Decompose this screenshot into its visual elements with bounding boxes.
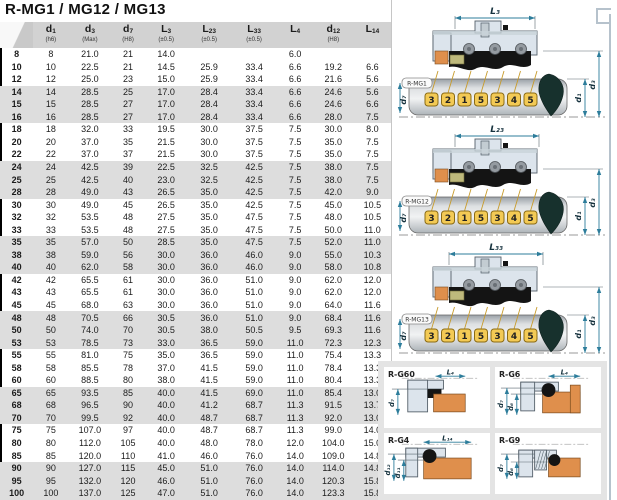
cell: 30.0 (145, 261, 188, 274)
svg-text:5: 5 (527, 214, 533, 224)
row-label: 8 (0, 48, 33, 61)
cell: 36.5 (188, 337, 231, 350)
cell: 9.0 (278, 249, 313, 262)
table-row: 404062.05830.036.046.09.058.010.8 (0, 261, 391, 274)
cell: 7.5 (278, 186, 313, 199)
cell: 75.4 (313, 349, 354, 362)
cell: 22 (33, 148, 68, 161)
row-label: 58 (0, 362, 33, 375)
cell: 11.0 (278, 337, 313, 350)
svg-text:2: 2 (445, 332, 451, 342)
cell: 9.5 (278, 324, 313, 337)
cell: 37.0 (68, 148, 111, 161)
cell: 9.0 (278, 261, 313, 274)
cell: 64.0 (313, 299, 354, 312)
cell: 9.0 (278, 299, 313, 312)
cell: 78.5 (68, 337, 111, 350)
cell: 28.5 (68, 111, 111, 124)
row-label: 15 (0, 98, 33, 111)
cell: 51.0 (188, 462, 231, 475)
cell: 90 (33, 462, 68, 475)
cell: 49.0 (68, 199, 111, 212)
cell: 58 (33, 362, 68, 375)
cell: 76.0 (231, 475, 278, 488)
cell: 12.0 (278, 437, 313, 450)
cell: 125 (111, 487, 144, 500)
row-label: 53 (0, 337, 33, 350)
corner-header (0, 22, 33, 48)
table-row: 333353.54827.535.047.57.550.011.0 (0, 224, 391, 237)
cell: 7.5 (354, 161, 391, 174)
table-row: 383859.05630.036.046.09.055.010.3 (0, 249, 391, 262)
cell: 30.5 (145, 311, 188, 324)
cell: 22.5 (68, 61, 111, 74)
cell (188, 48, 231, 61)
cell: 35.0 (188, 186, 231, 199)
cell: 6.6 (354, 61, 391, 74)
cell: 28.4 (188, 98, 231, 111)
cell: 38.0 (313, 161, 354, 174)
cell: 7.5 (354, 111, 391, 124)
svg-text:d₇: d₇ (497, 464, 505, 472)
table-row: 252542.54023.032.542.57.538.07.5 (0, 173, 391, 186)
cell: 59.0 (231, 337, 278, 350)
cell: 24.6 (313, 86, 354, 99)
row-label: 38 (0, 249, 33, 262)
cell: 69.3 (313, 324, 354, 337)
cell: 17.0 (145, 111, 188, 124)
cell: 48.7 (188, 424, 231, 437)
row-label: 40 (0, 261, 33, 274)
cell: 27.5 (145, 224, 188, 237)
cell: 100 (33, 487, 68, 500)
cell: 30.0 (188, 123, 231, 136)
cell: 28.4 (188, 111, 231, 124)
cell: 115 (111, 462, 144, 475)
cell: 76.0 (231, 462, 278, 475)
cell: 25.9 (188, 73, 231, 86)
cell: 33.4 (231, 73, 278, 86)
cell: 17.0 (145, 86, 188, 99)
card-label: R-G6 (499, 370, 521, 379)
table-row: 242442.53922.532.542.57.538.07.5 (0, 161, 391, 174)
seat-ring (435, 169, 448, 182)
cell: 69.0 (231, 387, 278, 400)
diagram-label: R-MG1 (407, 81, 427, 88)
cell: 7.5 (354, 173, 391, 186)
cell: 8 (33, 48, 68, 61)
cell: 132.0 (68, 475, 111, 488)
row-label: 14 (0, 86, 33, 99)
cell: 68.4 (313, 311, 354, 324)
svg-text:d₃: d₃ (588, 80, 597, 90)
row-label: 16 (0, 111, 33, 124)
cell: 7.5 (278, 236, 313, 249)
cell: 46.0 (188, 450, 231, 463)
cell: 6.6 (278, 98, 313, 111)
svg-text:3: 3 (494, 96, 500, 106)
cell: 47.5 (231, 224, 278, 237)
cell: 110 (111, 450, 144, 463)
cell: 37.5 (231, 136, 278, 149)
cell: 56 (111, 249, 144, 262)
cell: 50 (33, 324, 68, 337)
card-label: R-G60 (388, 370, 415, 379)
cell: 37.0 (145, 362, 188, 375)
diagram-label: R-MG12 (405, 199, 429, 206)
o-ring (548, 454, 560, 466)
cell: 24 (33, 161, 68, 174)
cell: 33.4 (231, 111, 278, 124)
cell: 112.0 (68, 437, 111, 450)
cell: 105 (111, 437, 144, 450)
cell: 45 (111, 199, 144, 212)
cell: 120.0 (68, 450, 111, 463)
table-row: 606088.58038.041.559.011.080.413.3 (0, 374, 391, 387)
row-label: 45 (0, 299, 33, 312)
cell: 12.0 (354, 274, 391, 287)
cell: 23.0 (145, 173, 188, 186)
cell: 25 (33, 173, 68, 186)
cell: 76.0 (231, 450, 278, 463)
cell: 28.5 (68, 86, 111, 99)
cell: 127.0 (68, 462, 111, 475)
cell: 47.5 (231, 211, 278, 224)
cell: 32.5 (188, 173, 231, 186)
cell: 20 (33, 136, 68, 149)
cell: 48 (111, 224, 144, 237)
svg-text:d₇: d₇ (399, 213, 408, 223)
cell: 59.0 (231, 374, 278, 387)
cell: 7.5 (278, 224, 313, 237)
cell: 33.4 (231, 98, 278, 111)
row-label: 20 (0, 136, 33, 149)
cell: 40 (111, 173, 144, 186)
cell: 62.0 (68, 261, 111, 274)
cell: 45.0 (145, 462, 188, 475)
cell: 27 (111, 98, 144, 111)
svg-text:2: 2 (445, 214, 451, 224)
cell: 37.5 (231, 123, 278, 136)
svg-text:L₂₃: L₂₃ (490, 125, 504, 135)
seat-card-r-g9: R-G9d₇d₆ (495, 433, 601, 494)
cell: 51.0 (188, 475, 231, 488)
row-label: 95 (0, 475, 33, 488)
cell: 30.0 (145, 274, 188, 287)
cell: 10 (33, 61, 68, 74)
svg-text:d₆: d₆ (507, 468, 515, 476)
cell: 14.0 (278, 487, 313, 500)
cell: 36.0 (188, 286, 231, 299)
cell: 9.0 (278, 274, 313, 287)
cell: 35 (33, 236, 68, 249)
cell: 6.6 (278, 111, 313, 124)
o-ring (542, 383, 556, 397)
cell: 58 (111, 261, 144, 274)
cell: 70.5 (68, 311, 111, 324)
cell: 33 (111, 123, 144, 136)
row-label: 75 (0, 424, 33, 437)
cell: 50 (111, 236, 144, 249)
cell: 85.4 (313, 387, 354, 400)
cell: 38.0 (145, 374, 188, 387)
cell: 16 (33, 111, 68, 124)
cell: 30.0 (145, 249, 188, 262)
table-row: 181832.03319.530.037.57.530.08.0 (0, 123, 391, 136)
column-header-d1: d1(h6) (33, 22, 68, 48)
cell: 42.5 (231, 173, 278, 186)
cell: 7.5 (354, 148, 391, 161)
cell: 48.0 (188, 437, 231, 450)
cell: 7.5 (278, 148, 313, 161)
cell: 41.5 (188, 374, 231, 387)
cell: 90 (111, 399, 144, 412)
cell: 7.5 (278, 123, 313, 136)
cell: 40.0 (145, 412, 188, 425)
svg-text:3: 3 (494, 214, 500, 224)
svg-text:4: 4 (511, 332, 517, 342)
row-label: 80 (0, 437, 33, 450)
page-frame-border (609, 14, 611, 500)
cell: 32.0 (68, 123, 111, 136)
cell: 51.0 (231, 286, 278, 299)
cell: 42.5 (68, 161, 111, 174)
cell: 11.6 (354, 324, 391, 337)
cell: 107.0 (68, 424, 111, 437)
cell (313, 48, 354, 61)
row-label: 25 (0, 173, 33, 186)
table-row: 202037.03521.530.037.57.535.07.5 (0, 136, 391, 149)
cell: 21.6 (313, 73, 354, 86)
cell: 35.0 (145, 349, 188, 362)
cell: 18 (33, 123, 68, 136)
table-row: 303049.04526.535.042.57.545.010.5 (0, 199, 391, 212)
cell: 35 (111, 136, 144, 149)
cell: 26.5 (145, 186, 188, 199)
cell: 22.5 (145, 161, 188, 174)
row-label: 32 (0, 211, 33, 224)
table-row: 707099.59240.048.768.711.392.013.0 (0, 412, 391, 425)
cell: 96.5 (68, 399, 111, 412)
cell: 75 (33, 424, 68, 437)
cell: 41.0 (145, 450, 188, 463)
svg-text:5: 5 (478, 96, 484, 106)
column-header-d7: d7(H8) (111, 22, 144, 48)
cell: 11.0 (278, 362, 313, 375)
svg-text:d₃: d₃ (588, 198, 597, 208)
row-label: 42 (0, 274, 33, 287)
cell: 38.0 (313, 173, 354, 186)
cell: 48 (33, 311, 68, 324)
table-row: 656593.58540.041.569.011.085.413.0 (0, 387, 391, 400)
cell: 45.0 (313, 199, 354, 212)
seat-ring (435, 287, 448, 300)
table-row: 535378.57333.036.559.011.072.312.3 (0, 337, 391, 350)
cell: 6.6 (354, 98, 391, 111)
svg-text:d₇: d₇ (497, 400, 505, 408)
row-label: 50 (0, 324, 33, 337)
cell: 51.0 (231, 311, 278, 324)
seal-diagram-r-mg13: 3215345R-MG13L₃₃d₁d₃d₇ (397, 241, 609, 357)
svg-text:3: 3 (428, 96, 434, 106)
cell: 15.0 (145, 73, 188, 86)
cell: 63 (111, 299, 144, 312)
svg-text:3: 3 (428, 214, 434, 224)
cell: 99.0 (313, 424, 354, 437)
svg-text:d₇: d₇ (399, 331, 408, 341)
cell: 75 (111, 349, 144, 362)
cell: 120.3 (313, 475, 354, 488)
cell: 35.0 (313, 148, 354, 161)
table-row: 7575107.09740.048.768.711.399.014.0 (0, 424, 391, 437)
cell: 49.0 (68, 186, 111, 199)
cell: 120 (111, 475, 144, 488)
cell: 51.0 (231, 299, 278, 312)
cell: 73 (111, 337, 144, 350)
face-ring (450, 291, 464, 300)
cell: 92.0 (313, 412, 354, 425)
svg-text:5: 5 (478, 214, 484, 224)
cell: 30 (33, 199, 68, 212)
column-header-L3: L3(±0.5) (145, 22, 188, 48)
cell: 7.5 (354, 136, 391, 149)
svg-text:d₆: d₆ (507, 403, 515, 411)
cell: 25 (111, 86, 144, 99)
cell: 52.0 (313, 236, 354, 249)
cell: 80 (33, 437, 68, 450)
cell: 55 (33, 349, 68, 362)
cell: 28.0 (313, 111, 354, 124)
column-header-d12: d12(H8) (313, 22, 354, 48)
cell: 51.0 (231, 274, 278, 287)
cell: 43 (111, 186, 144, 199)
cell: 19.5 (145, 123, 188, 136)
table-header: d1(h6)d3(Max)d7(H8)L3(±0.5)L23(±0.5)L33(… (0, 22, 391, 48)
table-row: 323253.54827.535.047.57.548.010.5 (0, 211, 391, 224)
cell: 68 (33, 399, 68, 412)
row-label: 68 (0, 399, 33, 412)
cell: 33.0 (145, 337, 188, 350)
cell: 41.5 (188, 362, 231, 375)
cell: 88.5 (68, 374, 111, 387)
cell: 48.0 (313, 211, 354, 224)
cell: 53.5 (68, 211, 111, 224)
cell: 85 (33, 450, 68, 463)
cell: 30.5 (145, 324, 188, 337)
svg-text:d₇: d₇ (399, 95, 408, 105)
seat-card-r-g60: R-G60L₄d₇ (384, 367, 490, 428)
face-ring (450, 55, 464, 64)
cell: 35.0 (313, 136, 354, 149)
cell: 6.6 (278, 61, 313, 74)
table-row: 484870.56630.536.051.09.068.411.6 (0, 311, 391, 324)
cell: 7.5 (278, 173, 313, 186)
cell: 42.5 (231, 161, 278, 174)
cell: 40.0 (145, 424, 188, 437)
svg-text:d₁₂: d₁₂ (384, 464, 392, 475)
cell: 11.3 (278, 424, 313, 437)
cell: 37 (111, 148, 144, 161)
row-label: 22 (0, 148, 33, 161)
cell: 38 (33, 249, 68, 262)
cell: 68.7 (231, 424, 278, 437)
svg-text:L₃: L₃ (490, 7, 500, 17)
cell: 12.0 (354, 286, 391, 299)
seat (434, 394, 466, 412)
cell: 78.4 (313, 362, 354, 375)
cell: 91.5 (313, 399, 354, 412)
cell: 65.5 (68, 286, 111, 299)
cell: 70 (33, 412, 68, 425)
cell: 32 (33, 211, 68, 224)
table-row: 8821.02114.06.0 (0, 48, 391, 61)
cell: 5.6 (354, 73, 391, 86)
cell: 42.5 (68, 173, 111, 186)
cell: 28.5 (68, 98, 111, 111)
cell: 46.0 (231, 249, 278, 262)
cell: 8.0 (354, 123, 391, 136)
cell: 35.0 (188, 236, 231, 249)
svg-text:d₃: d₃ (588, 316, 597, 326)
table-row: 101022.52114.525.933.46.619.26.6 (0, 61, 391, 74)
svg-text:4: 4 (511, 96, 517, 106)
dimension-table-container: d1(h6)d3(Max)d7(H8)L3(±0.5)L23(±0.5)L33(… (0, 22, 391, 500)
cell: 47.5 (231, 236, 278, 249)
cell: 47.0 (145, 487, 188, 500)
cell: 40.0 (145, 387, 188, 400)
cell: 27 (111, 111, 144, 124)
cell: 39 (111, 161, 144, 174)
cell: 37.0 (68, 136, 111, 149)
cell: 5.6 (354, 86, 391, 99)
cell: 36.0 (188, 274, 231, 287)
cell: 137.0 (68, 487, 111, 500)
svg-text:5: 5 (527, 332, 533, 342)
cell: 6.6 (278, 86, 313, 99)
cell: 36.0 (188, 249, 231, 262)
cell: 43 (33, 286, 68, 299)
cell (354, 48, 391, 61)
cell: 78 (111, 362, 144, 375)
seal-diagram-r-mg12: 3215345R-MG12L₂₃d₁d₃d₇ (397, 123, 609, 239)
cell: 10.8 (354, 261, 391, 274)
cell: 81.0 (68, 349, 111, 362)
cell: 65 (33, 387, 68, 400)
cell: 11.0 (278, 374, 313, 387)
row-label: 43 (0, 286, 33, 299)
svg-text:5: 5 (527, 96, 533, 106)
cell: 42 (33, 274, 68, 287)
cell: 58.0 (313, 261, 354, 274)
cell: 14.0 (278, 475, 313, 488)
cell: 42.5 (231, 186, 278, 199)
svg-text:L₄: L₄ (561, 369, 568, 377)
cell: 62.0 (313, 286, 354, 299)
cell: 46.0 (231, 261, 278, 274)
cell: 33.4 (231, 61, 278, 74)
cell: 11.0 (354, 236, 391, 249)
table-row: 161628.52717.028.433.46.628.07.5 (0, 111, 391, 124)
column-header-L23: L23(±0.5) (188, 22, 231, 48)
cell: 10.5 (354, 211, 391, 224)
cell: 21.5 (145, 148, 188, 161)
row-label: 10 (0, 61, 33, 74)
cell: 21 (111, 61, 144, 74)
cell: 6.6 (278, 73, 313, 86)
row-label: 48 (0, 311, 33, 324)
cell: 41.5 (188, 387, 231, 400)
table-row: 8585120.011041.046.076.014.0109.014.8 (0, 450, 391, 463)
